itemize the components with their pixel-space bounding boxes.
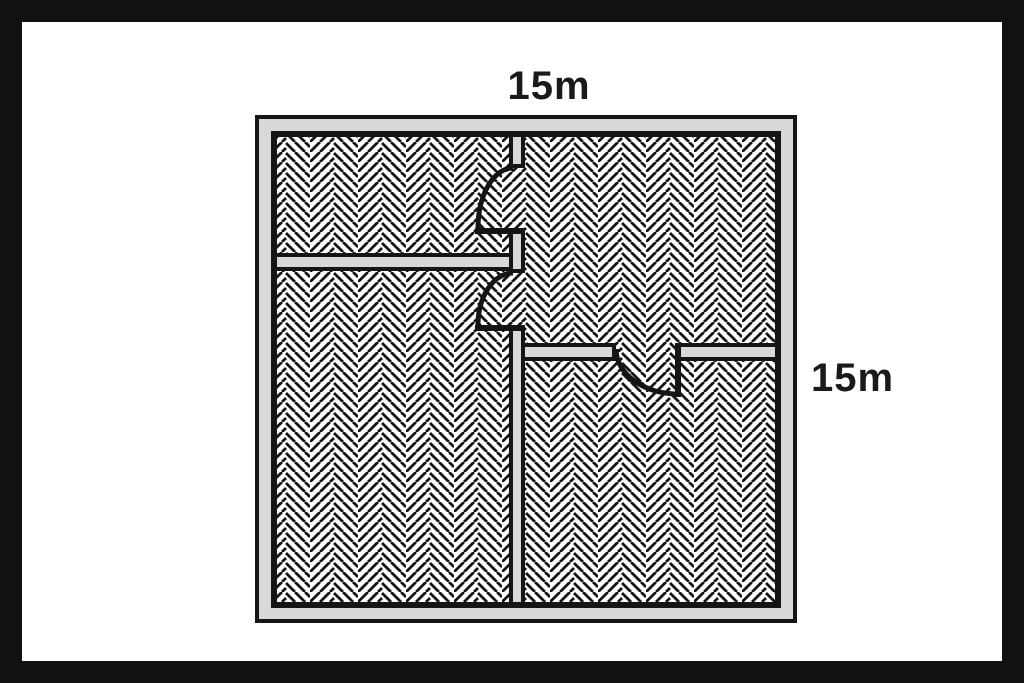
image-border-frame: 15m 15m (0, 0, 1024, 683)
wall-core-vertical-lower (513, 329, 521, 602)
floor-area (277, 137, 775, 602)
wall-core-horizontal-left (277, 257, 509, 267)
dimension-label-top: 15m (507, 64, 590, 108)
door-3-leaf (675, 343, 681, 397)
door-1-leaf (475, 228, 525, 234)
wall-core-vertical-top-stub (513, 137, 521, 164)
door-2-leaf (475, 325, 525, 331)
wall-core-horizontal-right-b (679, 347, 775, 357)
wall-core-vertical-mid-stub (513, 232, 521, 269)
herringbone-hatch (277, 137, 775, 602)
dimension-label-right: 15m (811, 356, 894, 400)
wall-core-horizontal-right-a (525, 347, 612, 357)
floor-plan (22, 22, 1024, 683)
